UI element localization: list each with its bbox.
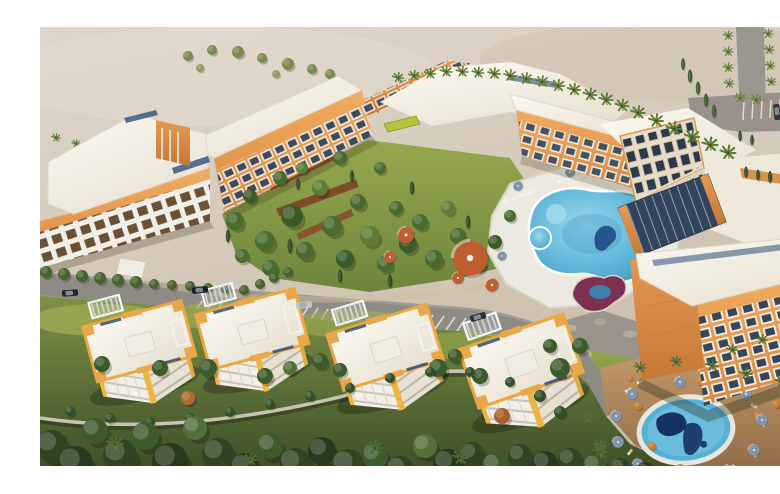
kids-pool: Round children's pool (529, 227, 551, 249)
frame-strip-bottom (40, 466, 780, 478)
stair-tower (156, 120, 190, 166)
frame-strip-top (40, 16, 780, 27)
southeast-wing: South-east hotel wing (630, 236, 780, 422)
resort-aerial-rendering: Aerial architectural rendering of a dese… (40, 16, 780, 478)
car (62, 289, 78, 297)
scene-canvas: Aerial architectural rendering of a dese… (40, 16, 780, 478)
